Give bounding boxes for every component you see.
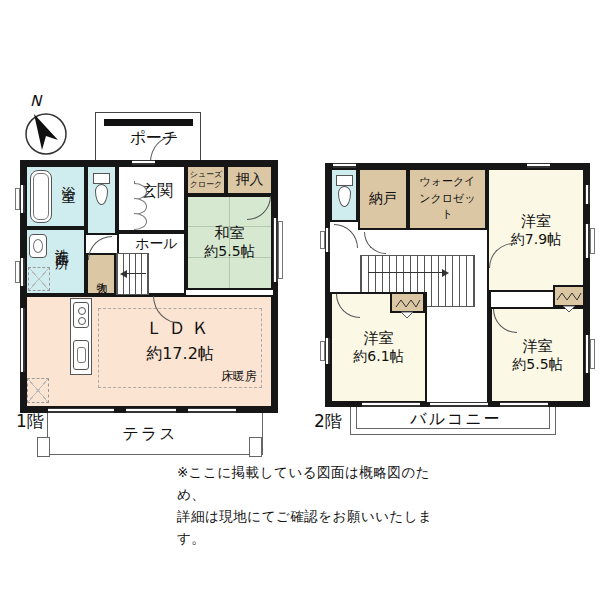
sill-79-right xyxy=(590,228,595,254)
washing-machine-space xyxy=(28,267,50,291)
window-hall2f-bottom xyxy=(430,402,488,407)
window-hall2f-left xyxy=(325,228,330,252)
folding-door-mark-61 xyxy=(400,311,414,319)
terrace-label: テラス xyxy=(108,424,192,445)
terrace-post-left xyxy=(37,437,50,457)
balcony-label: バルコニー xyxy=(408,409,504,430)
window-55-bottom xyxy=(500,402,548,407)
toilet-bowl-icon xyxy=(95,184,108,205)
entrance-step xyxy=(119,181,135,230)
disclaimer-note: ※ここに掲載している図面は概略図のため、 詳細は現地にてご確認をお願いいたします… xyxy=(177,461,457,549)
oshiire-label: 押入 xyxy=(236,171,264,189)
stairs-2f-arrow xyxy=(368,272,442,273)
hanger-pipe-icon xyxy=(395,298,421,308)
room-bathroom: 浴室 xyxy=(25,165,86,228)
disclaimer-line1: ※ここに掲載している図面は概略図のため、 xyxy=(177,461,457,505)
nando-label: 納戸 xyxy=(369,190,397,208)
disclaimer-line2: 詳細は現地にてご確認をお願いいたします。 xyxy=(177,505,457,549)
washroom-label: 洗面所 xyxy=(53,238,71,247)
room-yoshitsu-79: 洋室 約7.9帖 xyxy=(487,168,585,292)
window-ldk-bottom-1 xyxy=(48,408,114,413)
room-toilet-1f xyxy=(86,165,117,235)
room-toilet-2f xyxy=(330,168,358,222)
sill-55-right xyxy=(590,339,595,369)
yoshitsu79-name: 洋室 xyxy=(521,212,551,231)
window-79-right-1 xyxy=(585,185,590,204)
shoe-closet-label: シューズクローク xyxy=(188,170,224,191)
washitsu-size: 約5.5帖 xyxy=(204,243,254,261)
yoshitsu79-size: 約7.9帖 xyxy=(511,231,561,249)
toilet-tank-icon xyxy=(93,173,110,184)
ldk-size: 約17.2帖 xyxy=(130,344,230,365)
yoshitsu61-name: 洋室 xyxy=(364,329,394,348)
compass-north-icon: N xyxy=(16,88,82,162)
window-61-left xyxy=(325,338,330,364)
room-shoe-closet: シューズクローク xyxy=(186,165,226,195)
window-79-top xyxy=(527,163,550,168)
room-washroom: 洗面所 xyxy=(25,228,86,295)
refrigerator-space xyxy=(27,378,49,403)
room-entrance: 玄関 xyxy=(117,165,186,232)
window-61-bottom xyxy=(362,402,420,407)
window-ldk-left xyxy=(20,308,25,372)
mono-ire-label: 物入 xyxy=(94,273,108,275)
hanger-pipe-icon xyxy=(556,291,582,301)
room-walk-in-closet: ウォークインクロゼット xyxy=(408,168,487,230)
window-washroom-left xyxy=(20,258,25,286)
stairs-1f-arrow xyxy=(126,273,146,274)
hall-label: ホール xyxy=(135,235,178,253)
closet-yoshitsu-55 xyxy=(553,285,585,307)
walk-in-closet-label: ウォークインクロゼット xyxy=(410,174,485,224)
sill-washroom-left xyxy=(15,261,20,283)
yoshitsu55-size: 約5.5帖 xyxy=(512,356,562,374)
floor2-label: 2階 xyxy=(314,410,342,433)
stairs-1f-arrowhead xyxy=(120,270,127,278)
yoshitsu61-size: 約6.1帖 xyxy=(353,348,403,366)
floorplan-page: N テラス ポーチ 浴室 玄関 シューズクローク 押入 和室 約5. xyxy=(0,0,600,600)
compass-n-letter: N xyxy=(30,92,43,110)
sill-washitsu-right xyxy=(278,221,283,279)
washitsu-name: 和室 xyxy=(215,224,245,243)
sill-hall2f-left xyxy=(320,231,325,249)
yoshitsu55-name: 洋室 xyxy=(523,337,553,356)
porch-canopy-bar xyxy=(104,119,193,126)
washbasin-icon xyxy=(29,234,47,258)
toilet-2f-bowl-icon xyxy=(338,186,351,207)
terrace-post-right xyxy=(249,437,262,457)
window-ldk-bottom-3 xyxy=(188,408,236,413)
bathroom-label: 浴室 xyxy=(60,175,78,181)
room-oshiire: 押入 xyxy=(226,165,273,195)
kitchen-sink-icon xyxy=(73,340,89,370)
floor-heating-label: 床暖房 xyxy=(221,368,257,385)
folding-door-mark-55 xyxy=(562,305,576,313)
stove-icon xyxy=(73,302,89,328)
toilet-2f-tank-icon xyxy=(336,175,353,186)
sill-61-left xyxy=(320,341,325,361)
floor1-label: 1階 xyxy=(16,410,44,433)
window-toilet2f-top xyxy=(333,163,356,168)
bathtub-icon xyxy=(30,170,52,223)
sill-bath-left xyxy=(15,188,20,210)
entrance-doorway-gap xyxy=(132,160,155,165)
stairs-2f-arrowhead xyxy=(442,269,449,277)
window-bath-left xyxy=(20,185,25,213)
window-ldk-bottom-2 xyxy=(126,408,176,413)
closet-yoshitsu-61 xyxy=(390,292,425,313)
room-nando: 納戸 xyxy=(358,168,408,230)
shoe-cabinet-door-3 xyxy=(134,213,147,230)
